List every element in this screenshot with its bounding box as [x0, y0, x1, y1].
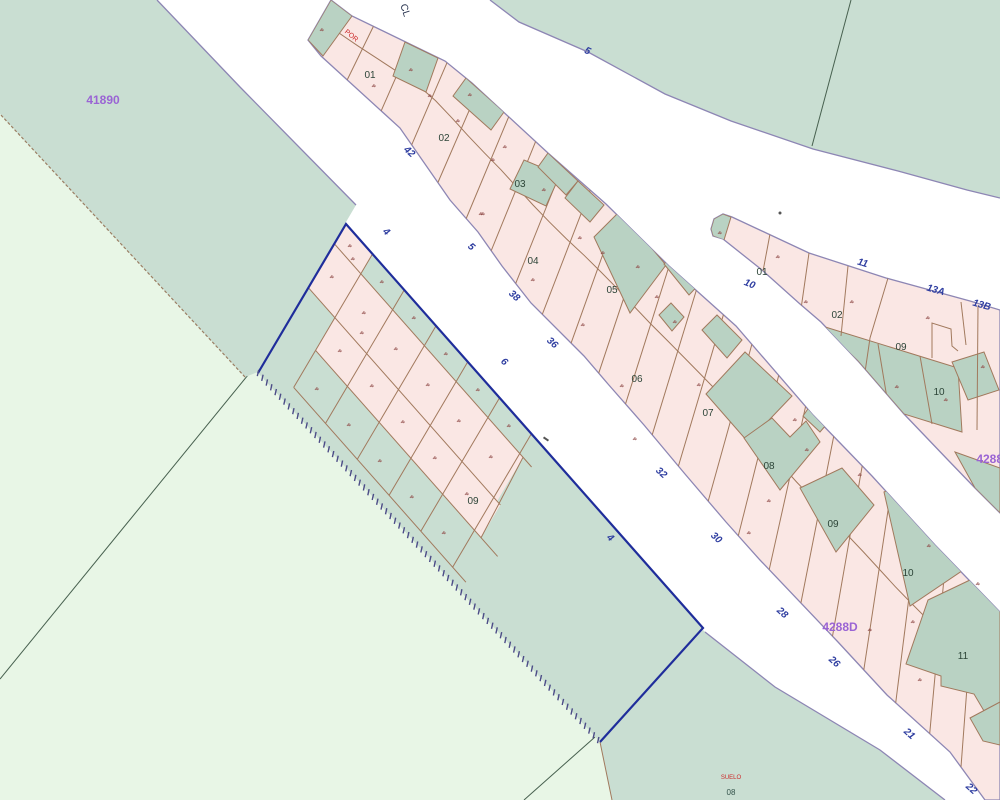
- svg-text:09: 09: [467, 496, 479, 507]
- svg-text:09: 09: [827, 519, 839, 530]
- svg-text:4288D: 4288D: [976, 452, 1000, 466]
- svg-text:08: 08: [763, 461, 775, 472]
- svg-text:09: 09: [895, 342, 907, 353]
- svg-text:01: 01: [756, 267, 768, 278]
- svg-text:02: 02: [438, 133, 450, 144]
- svg-text:03: 03: [514, 179, 526, 190]
- svg-text:07: 07: [702, 408, 714, 419]
- svg-text:05: 05: [606, 285, 618, 296]
- svg-text:02: 02: [831, 310, 843, 321]
- svg-text:SUELO: SUELO: [721, 775, 742, 781]
- svg-text:04: 04: [527, 256, 539, 267]
- svg-text:10: 10: [933, 387, 945, 398]
- svg-text:10: 10: [902, 568, 914, 579]
- svg-text:01: 01: [364, 70, 376, 81]
- svg-text:4288D: 4288D: [822, 620, 858, 634]
- svg-text:06: 06: [631, 374, 643, 385]
- svg-text:11: 11: [958, 651, 969, 662]
- svg-text:08: 08: [727, 788, 736, 797]
- svg-text:41890: 41890: [86, 93, 120, 107]
